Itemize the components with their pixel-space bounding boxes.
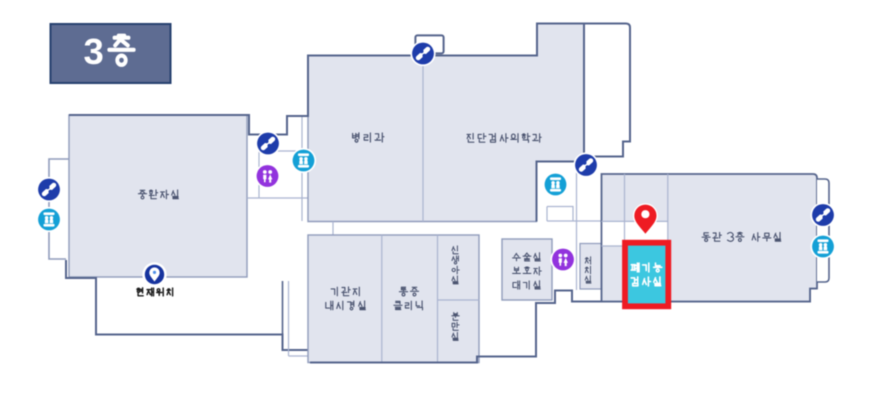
svg-text:3: 3: [84, 31, 104, 72]
